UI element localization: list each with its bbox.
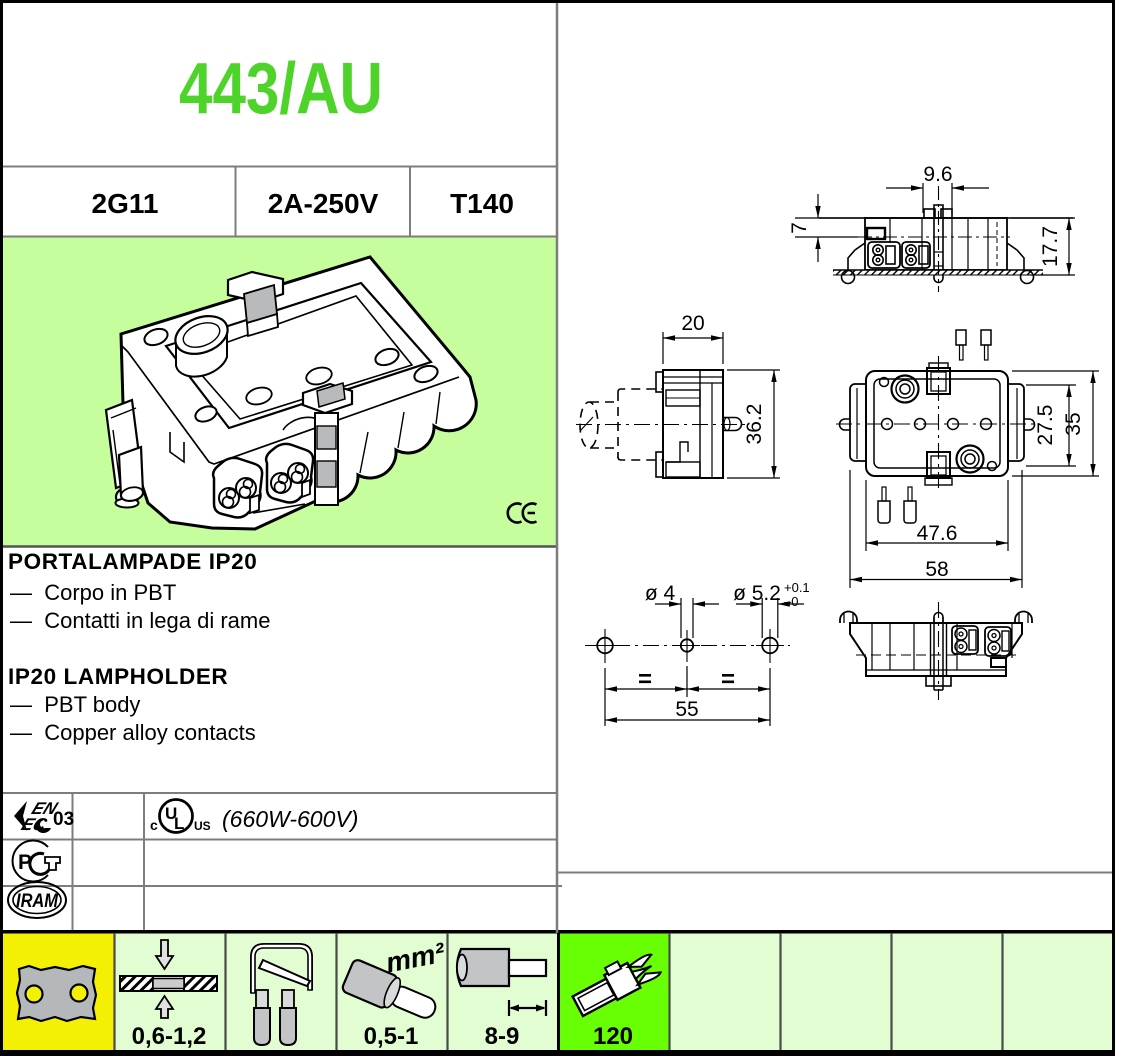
svg-text:17.7: 17.7	[1039, 226, 1062, 267]
svg-text:T140: T140	[450, 188, 514, 219]
svg-text:120: 120	[593, 1023, 633, 1050]
svg-text:ø 5.2: ø 5.2	[733, 582, 781, 605]
svg-text:— Contatti in lega di rame: — Contatti in lega di rame	[10, 608, 270, 633]
svg-text:47.6: 47.6	[917, 522, 958, 545]
svg-text:PORTALAMPADE IP20: PORTALAMPADE IP20	[8, 549, 257, 574]
svg-text:443/AU: 443/AU	[179, 49, 383, 129]
svg-text:US: US	[194, 819, 211, 833]
svg-text:03: 03	[53, 809, 74, 830]
svg-text:2A-250V: 2A-250V	[268, 188, 379, 219]
svg-text:— Corpo in PBT: — Corpo in PBT	[10, 580, 176, 605]
svg-text:20: 20	[681, 312, 704, 335]
svg-text:0,6-1,2: 0,6-1,2	[132, 1023, 207, 1050]
svg-text:2G11: 2G11	[92, 188, 159, 219]
svg-text:ø 4: ø 4	[645, 582, 676, 605]
svg-text:IP20 LAMPHOLDER: IP20 LAMPHOLDER	[8, 664, 228, 689]
svg-text:— Copper alloy contacts: — Copper alloy contacts	[10, 720, 256, 745]
svg-text:c: c	[150, 817, 158, 833]
svg-text:8-9: 8-9	[485, 1023, 520, 1050]
svg-text:35: 35	[1062, 412, 1085, 435]
svg-text:55: 55	[675, 698, 698, 721]
svg-text:— PBT body: — PBT body	[10, 692, 140, 717]
svg-text:58: 58	[925, 558, 948, 581]
svg-text:L: L	[174, 814, 184, 833]
svg-text:36.2: 36.2	[743, 404, 766, 445]
svg-text:9.6: 9.6	[923, 163, 952, 186]
svg-text:–0: –0	[784, 594, 798, 609]
svg-text:(660W-600V): (660W-600V)	[222, 806, 358, 832]
svg-text:IRAM: IRAM	[16, 891, 59, 912]
svg-text:27.5: 27.5	[1034, 405, 1057, 446]
svg-text:7: 7	[788, 222, 811, 234]
svg-text:+0.1: +0.1	[784, 580, 810, 595]
svg-text:0,5-1: 0,5-1	[364, 1023, 419, 1050]
